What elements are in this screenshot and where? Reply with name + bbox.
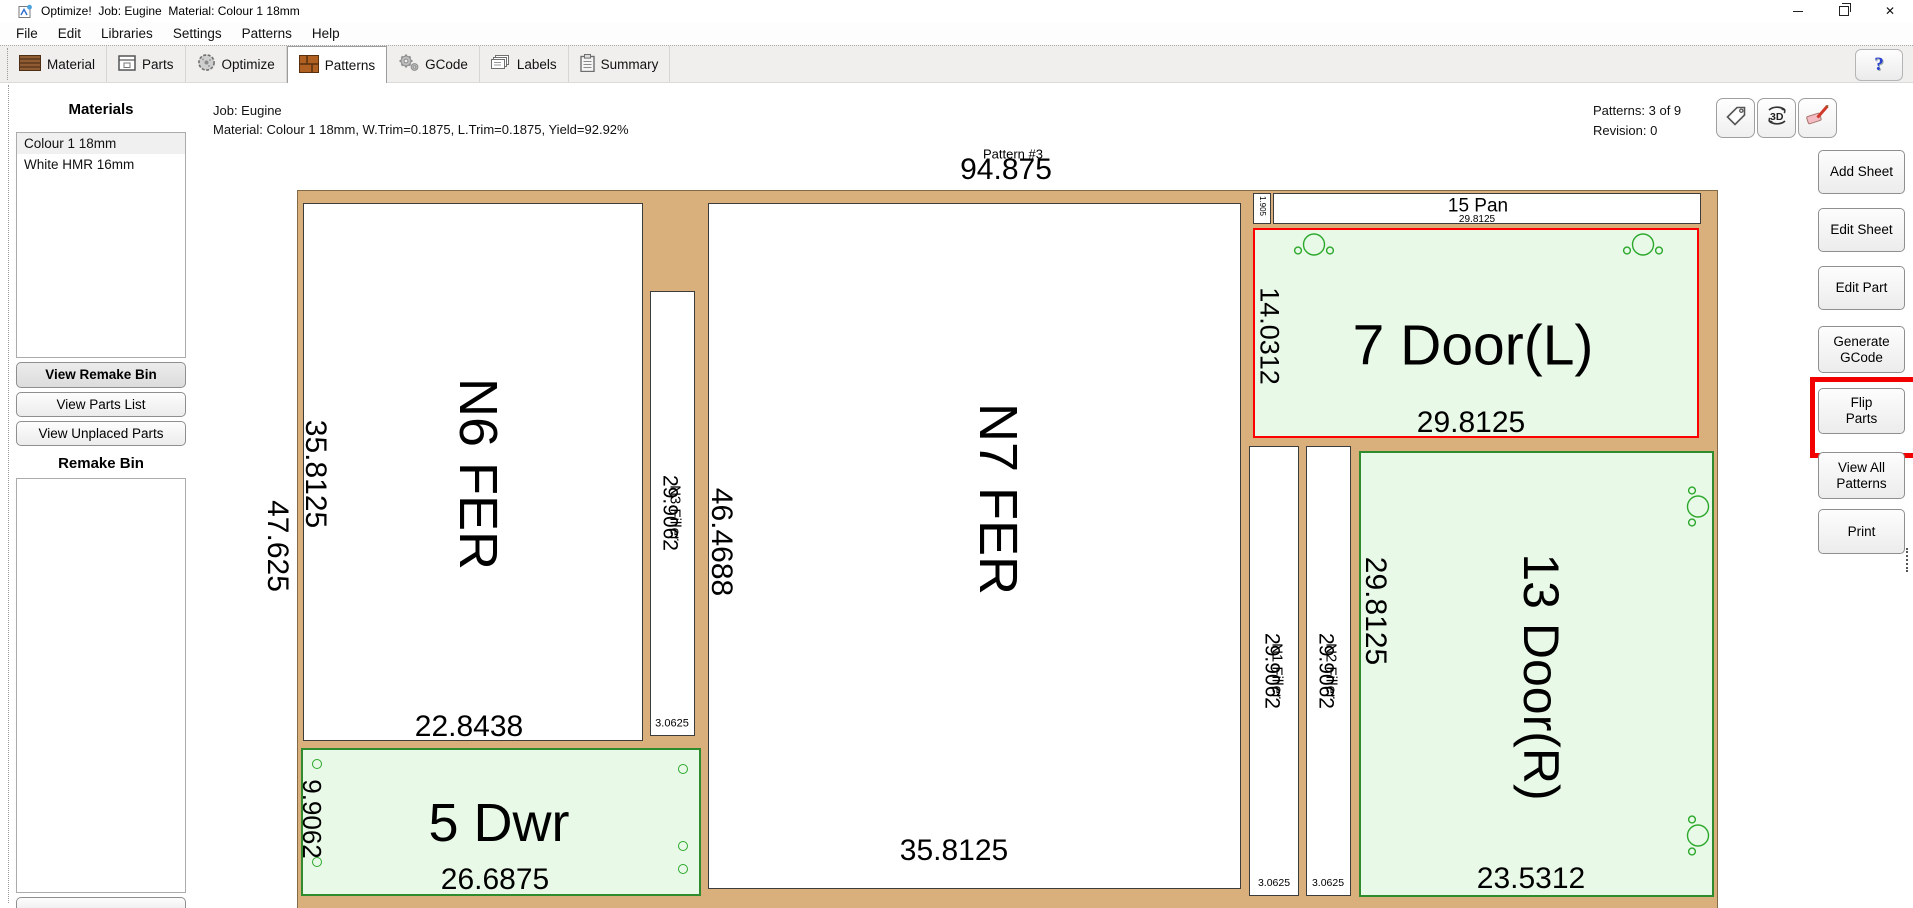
- window-controls: ✕: [1775, 0, 1913, 22]
- restore-button[interactable]: [1821, 0, 1867, 22]
- tag-icon: [1724, 104, 1748, 133]
- edit-part-button[interactable]: Edit Part: [1818, 266, 1905, 310]
- hinge-drill-icon: [1682, 484, 1710, 535]
- tab-label: Optimize: [222, 57, 275, 72]
- material-icon: [19, 55, 41, 74]
- hinge-drill-icon: [1291, 233, 1337, 266]
- view-all-patterns-button[interactable]: View All Patterns: [1818, 452, 1905, 499]
- tab-label: Summary: [601, 57, 659, 72]
- dimension-label: 29.8125: [1360, 557, 1390, 665]
- app-window: Optimize! Job: Eugine Material: Colour 1…: [0, 0, 1913, 908]
- dimension-label: 29.8125: [1459, 215, 1495, 225]
- saw-blade-icon: [197, 53, 216, 75]
- gears-icon: [398, 53, 419, 75]
- drill-mark-icon: [678, 841, 688, 851]
- job-line: Job: Eugine: [213, 101, 629, 120]
- tab-label: GCode: [425, 57, 468, 72]
- part-label: 15 Pan: [1448, 197, 1508, 216]
- dimension-label: 22.8438: [415, 712, 523, 742]
- pattern-meta: Patterns: 3 of 9 Revision: 0: [1593, 101, 1681, 141]
- view-parts-list-button[interactable]: View Parts List: [16, 392, 186, 417]
- sheet-length-dim: 94.875: [960, 155, 1052, 185]
- print-button[interactable]: Print: [1818, 509, 1905, 554]
- tab-patterns[interactable]: Patterns: [287, 46, 387, 83]
- remake-bin-list[interactable]: [16, 478, 186, 893]
- dimension-label: 3.0625: [1312, 878, 1344, 889]
- minimize-icon: [1793, 11, 1803, 12]
- menu-settings[interactable]: Settings: [163, 24, 232, 43]
- tab-gcode[interactable]: GCode: [387, 46, 480, 82]
- dimension-label: 14.0312: [1256, 287, 1283, 385]
- menu-libraries[interactable]: Libraries: [91, 24, 163, 43]
- dimension-label: 46.4688: [706, 488, 736, 596]
- generate-gcode-button[interactable]: Generate GCode: [1818, 326, 1905, 373]
- close-button[interactable]: ✕: [1867, 0, 1913, 22]
- remake-bin-heading: Remake Bin: [16, 455, 186, 472]
- dimension-label: 23.5312: [1477, 864, 1585, 894]
- sheet-width-dim: 47.625: [262, 500, 292, 592]
- tab-label: Patterns: [325, 58, 375, 73]
- dimension-label: 29.9062: [660, 475, 681, 551]
- view-unplaced-parts-button[interactable]: View Unplaced Parts: [16, 421, 186, 446]
- stacked-labels-icon: [491, 55, 511, 74]
- drill-mark-icon: [312, 759, 322, 769]
- flip-parts-button[interactable]: Flip Parts: [1818, 388, 1905, 434]
- svg-text:3D: 3D: [1770, 111, 1784, 123]
- material-list-item[interactable]: Colour 1 18mm: [17, 133, 185, 154]
- tab-label: Labels: [517, 57, 557, 72]
- job-info: Job: Eugine Material: Colour 1 18mm, W.T…: [213, 101, 629, 139]
- dimension-label: 9.9062: [299, 779, 325, 859]
- dimension-label: 3.0625: [655, 719, 689, 730]
- hinge-drill-icon: [1682, 813, 1710, 864]
- app-icon: [18, 4, 33, 19]
- part-label: 7 Door(L): [1353, 318, 1594, 375]
- menu-patterns[interactable]: Patterns: [232, 24, 302, 43]
- tab-parts[interactable]: Parts: [107, 46, 186, 82]
- tab-optimize[interactable]: Optimize: [186, 46, 287, 82]
- part-label: 13 Door(R): [1516, 553, 1566, 800]
- tab-label: Parts: [142, 57, 174, 72]
- toolbar-grip[interactable]: [0, 48, 8, 80]
- part-label: N7 FER: [971, 403, 1025, 595]
- minimize-button[interactable]: [1775, 0, 1821, 22]
- menu-help[interactable]: Help: [302, 24, 350, 43]
- material-line: Material: Colour 1 18mm, W.Trim=0.1875, …: [213, 120, 629, 139]
- sidebar-grip[interactable]: [8, 85, 9, 903]
- menu-file[interactable]: File: [6, 24, 48, 43]
- dimension-label: 35.8125: [900, 836, 1008, 866]
- dimension-label: 35.8125: [300, 420, 330, 528]
- revision: Revision: 0: [1593, 121, 1681, 141]
- menu-edit[interactable]: Edit: [48, 24, 91, 43]
- patterns-count: Patterns: 3 of 9: [1593, 101, 1681, 121]
- labels-tool-button[interactable]: [1716, 98, 1755, 138]
- tab-labels[interactable]: Labels: [480, 46, 569, 82]
- question-mark-icon: ?: [1874, 54, 1884, 76]
- eraser-pencil-icon: [1804, 103, 1831, 133]
- dimension-label: 29.9062: [1316, 633, 1337, 709]
- help-button[interactable]: ?: [1855, 49, 1903, 81]
- hinge-drill-icon: [1620, 233, 1666, 266]
- clipboard-icon: [580, 54, 595, 75]
- materials-list: Colour 1 18mm White HMR 16mm: [16, 132, 186, 358]
- drill-mark-icon: [678, 764, 688, 774]
- dimension-label: 29.9062: [1262, 633, 1283, 709]
- tab-summary[interactable]: Summary: [569, 46, 671, 82]
- drill-mark-icon: [312, 857, 322, 867]
- add-sheet-button[interactable]: Add Sheet: [1818, 150, 1905, 194]
- menubar: File Edit Libraries Settings Patterns He…: [0, 22, 1913, 45]
- view-3d-button[interactable]: 3D: [1757, 98, 1796, 138]
- part-label: 5 Dwr: [428, 796, 569, 850]
- dimension-label: 26.6875: [441, 865, 549, 895]
- toolbar: Material Parts Optimize Patterns GCode L…: [0, 45, 1913, 83]
- view-remake-bin-button[interactable]: View Remake Bin: [16, 362, 186, 388]
- pattern-sheet[interactable]: N6 FER 35.8125 22.8438 N3 Filler 29.9062…: [297, 190, 1718, 908]
- rotate-3d-icon: 3D: [1763, 103, 1790, 133]
- dimension-label: 3.0625: [1258, 878, 1290, 889]
- edit-sheet-button[interactable]: Edit Sheet: [1818, 208, 1905, 252]
- panel-icon: [118, 55, 136, 74]
- materials-heading: Materials: [16, 101, 186, 118]
- tab-material[interactable]: Material: [8, 46, 107, 82]
- dimension-label: 29.8125: [1417, 408, 1525, 438]
- sidebar-partial-button[interactable]: [16, 897, 186, 908]
- part-label: N6 FER: [451, 378, 505, 570]
- material-list-item[interactable]: White HMR 16mm: [17, 154, 185, 175]
- dimension-label: 1.905: [1258, 196, 1266, 216]
- splitter-handle[interactable]: [1906, 548, 1911, 572]
- tab-label: Material: [47, 57, 95, 72]
- patterns-icon: [299, 55, 319, 76]
- titlebar: Optimize! Job: Eugine Material: Colour 1…: [0, 0, 1913, 22]
- window-title: Optimize! Job: Eugine Material: Colour 1…: [41, 4, 300, 18]
- restore-icon: [1839, 6, 1849, 16]
- erase-button[interactable]: [1798, 98, 1837, 138]
- drill-mark-icon: [678, 864, 688, 874]
- close-icon: ✕: [1885, 4, 1895, 18]
